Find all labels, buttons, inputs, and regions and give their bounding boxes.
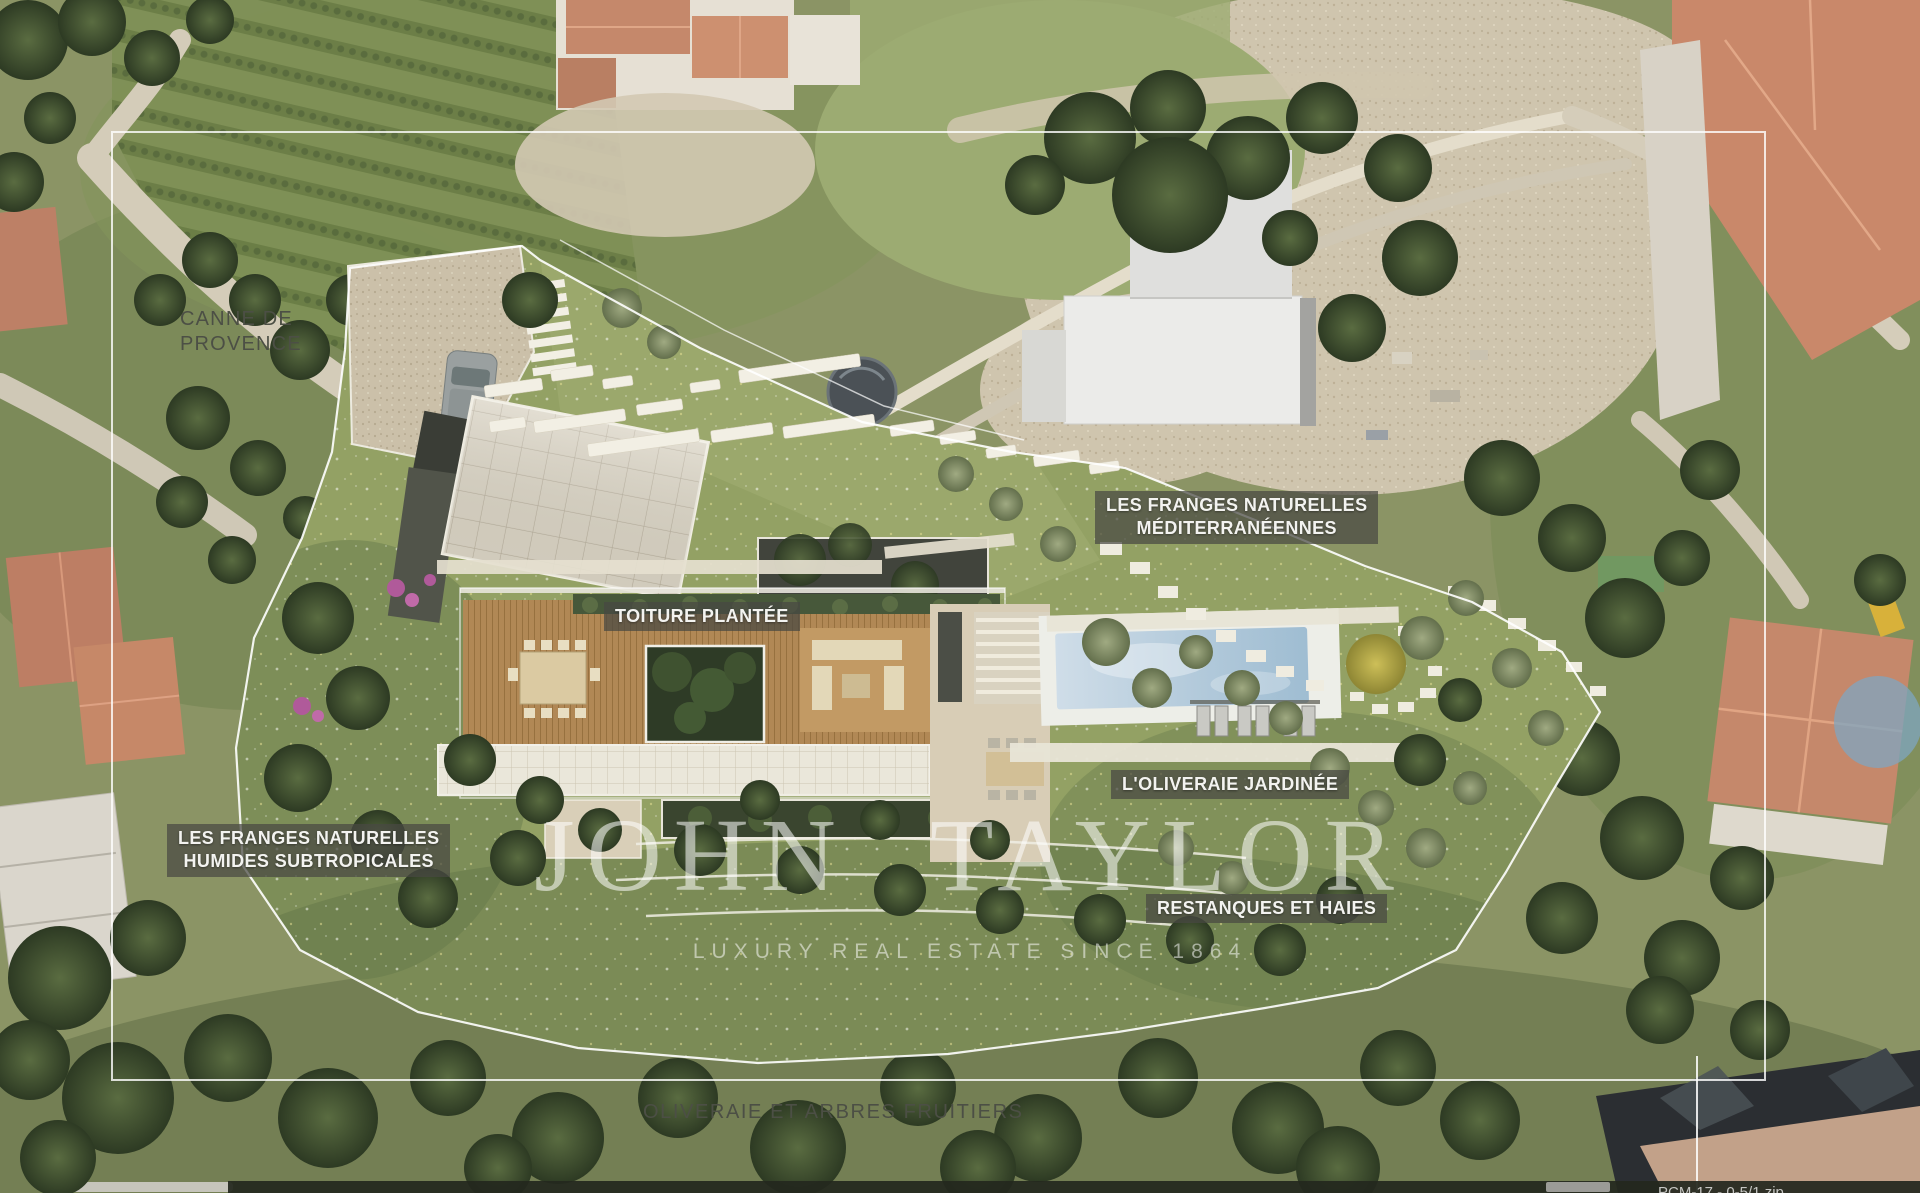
courtyard-void	[646, 646, 764, 742]
golden-tree	[1346, 634, 1406, 694]
aerial-photo	[0, 0, 1920, 1193]
lounge-set	[800, 628, 936, 732]
exterior-stairs	[976, 620, 1048, 692]
retaining-wall	[437, 560, 882, 574]
paved-walkway	[438, 745, 930, 795]
download-button-fragment[interactable]	[1546, 1182, 1610, 1192]
aerial-site-plan: JOHN TAYLOR LUXURY REAL ESTATE SINCE 186…	[0, 0, 1920, 1193]
courtyard-wall	[938, 612, 962, 702]
bottom-bar-fragment: PCM-17 - 0-5/1.zip	[228, 1181, 1920, 1193]
blue-tarp	[1834, 676, 1920, 768]
download-filename[interactable]: PCM-17 - 0-5/1.zip	[1658, 1184, 1784, 1193]
